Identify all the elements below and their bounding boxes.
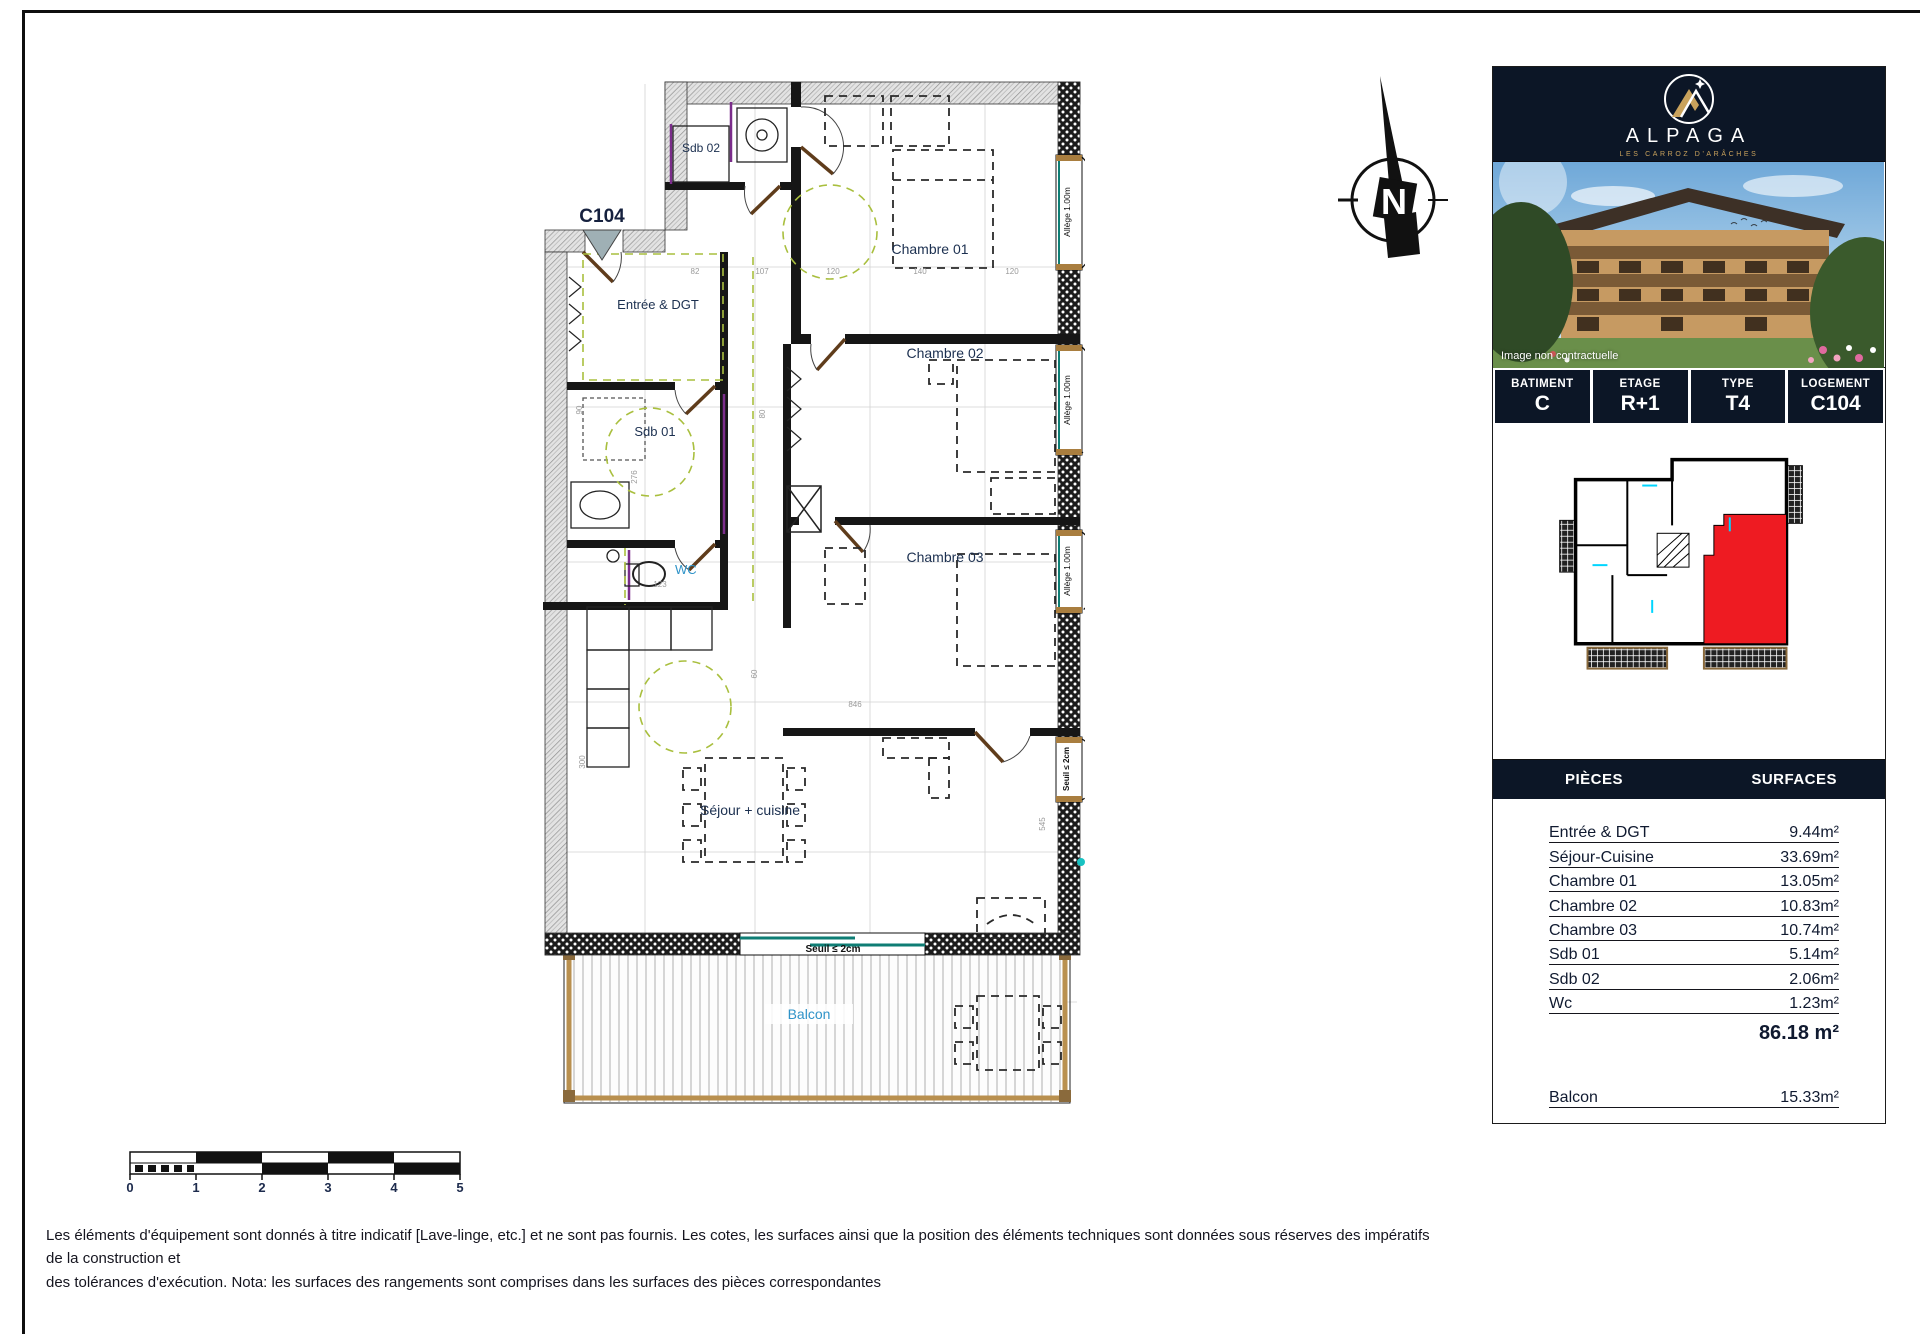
photo-caption: Image non contractuelle — [1501, 350, 1618, 362]
svg-text:82: 82 — [691, 267, 700, 276]
balcony-slider: Seuil ≤ 2cm — [740, 933, 925, 955]
table-row: Entrée & DGT9.44m² — [1549, 819, 1839, 843]
svg-text:0: 0 — [126, 1180, 133, 1194]
furniture — [683, 96, 1061, 1070]
room-label-chambre02: Chambre 02 — [906, 345, 983, 361]
svg-text:123: 123 — [653, 580, 667, 589]
threshold-label-right: Seuil ≤ 2cm — [1062, 747, 1071, 791]
svg-text:276: 276 — [630, 470, 639, 484]
table-row: Séjour-Cuisine33.69m² — [1549, 843, 1839, 867]
room-label-balcon: Balcon — [788, 1006, 831, 1022]
svg-text:4: 4 — [390, 1180, 398, 1194]
surfaces-header: SURFACES — [1751, 771, 1837, 788]
table-row: Chambre 0210.83m² — [1549, 892, 1839, 916]
table-row: Sdb 022.06m² — [1549, 965, 1839, 989]
disclaimer-line-2: des tolérances d'exécution. Nota: les su… — [46, 1271, 1436, 1294]
brand-header: ALPAGA LES CARROZ D'ARÂCHES — [1493, 67, 1885, 161]
total-surface: 86.18 m² — [1549, 1022, 1839, 1045]
svg-text:846: 846 — [848, 700, 862, 709]
legal-disclaimer: Les éléments d'équipement sont donnés à … — [46, 1224, 1436, 1294]
room-label-chambre01: Chambre 01 — [891, 241, 968, 257]
unit-info-panel: ALPAGA LES CARROZ D'ARÂCHES — [1492, 66, 1886, 1124]
pieces-header: PIÈCES — [1565, 771, 1623, 788]
surfaces-header-bar: PIÈCES SURFACES — [1493, 759, 1885, 799]
unit-info-row: BATIMENT C ETAGE R+1 TYPE T4 LOGEMENT C1… — [1493, 367, 1885, 425]
info-cell-etage: ETAGE R+1 — [1593, 370, 1688, 423]
key-plan-building — [1560, 460, 1803, 669]
room-label-wc: WC — [675, 562, 697, 577]
technical-duct — [787, 486, 821, 532]
key-plan-stair — [1657, 533, 1689, 567]
svg-text:120: 120 — [1005, 267, 1019, 276]
svg-text:5: 5 — [456, 1180, 463, 1194]
svg-text:107: 107 — [755, 267, 769, 276]
key-plan — [1493, 425, 1885, 759]
sill-label-1: Allège 1.00m — [1062, 187, 1072, 237]
building-photo: Image non contractuelle — [1493, 161, 1885, 367]
table-row: Chambre 0310.74m² — [1549, 917, 1839, 941]
info-cell-batiment: BATIMENT C — [1495, 370, 1590, 423]
interior-walls — [543, 82, 1080, 736]
balcony-row: Balcon15.33m² — [1549, 1083, 1839, 1107]
sheet-frame-top — [22, 10, 1920, 13]
svg-text:1: 1 — [192, 1180, 199, 1194]
sill-label-2: Allège 1.00m — [1062, 375, 1072, 425]
compass-n-label: N — [1381, 181, 1407, 222]
svg-text:80: 80 — [758, 409, 767, 418]
scale-bar: 0 1 2 3 4 5 — [120, 1142, 480, 1194]
disclaimer-line-1: Les éléments d'équipement sont donnés à … — [46, 1224, 1436, 1271]
unit-number-label: C104 — [579, 206, 625, 227]
svg-text:300: 300 — [578, 755, 587, 769]
sill-label-3: Allège 1.00m — [1062, 546, 1072, 596]
highlighted-unit — [1704, 514, 1787, 643]
svg-text:3: 3 — [324, 1180, 331, 1194]
room-label-chambre03: Chambre 03 — [906, 549, 983, 565]
room-label-entree: Entrée & DGT — [617, 297, 699, 312]
north-compass: N — [1330, 68, 1460, 268]
surfaces-table: Entrée & DGT9.44m² Séjour-Cuisine33.69m²… — [1493, 799, 1885, 1108]
plan-sheet: Seuil ≤ 2cm — [0, 0, 1920, 1334]
utility-dot — [1077, 858, 1085, 866]
svg-text:90: 90 — [575, 405, 584, 414]
brand-tagline: LES CARROZ D'ARÂCHES — [1620, 151, 1759, 158]
table-row: Sdb 015.14m² — [1549, 941, 1839, 965]
info-cell-type: TYPE T4 — [1691, 370, 1786, 423]
svg-text:60: 60 — [750, 669, 759, 678]
info-cell-logement: LOGEMENT C104 — [1788, 370, 1883, 423]
scale-tick-labels: 0 1 2 3 4 5 — [126, 1180, 463, 1194]
svg-text:120: 120 — [826, 267, 840, 276]
balcony-deck — [563, 948, 1071, 1103]
room-label-sejour: Séjour + cuisine — [700, 802, 800, 818]
table-row: Chambre 0113.05m² — [1549, 868, 1839, 892]
svg-text:545: 545 — [1038, 817, 1047, 831]
brand-name: ALPAGA — [1626, 125, 1753, 148]
floor-plan: Seuil ≤ 2cm — [525, 62, 1085, 1112]
alpaga-logo-icon — [1659, 71, 1719, 127]
sheet-frame-left — [22, 10, 25, 1334]
room-label-sdb02: Sdb 02 — [682, 141, 720, 155]
room-label-sdb01: Sdb 01 — [634, 424, 675, 439]
table-row: Wc1.23m² — [1549, 990, 1839, 1014]
threshold-label: Seuil ≤ 2cm — [806, 944, 861, 955]
svg-text:2: 2 — [258, 1180, 265, 1194]
svg-text:140: 140 — [913, 267, 927, 276]
